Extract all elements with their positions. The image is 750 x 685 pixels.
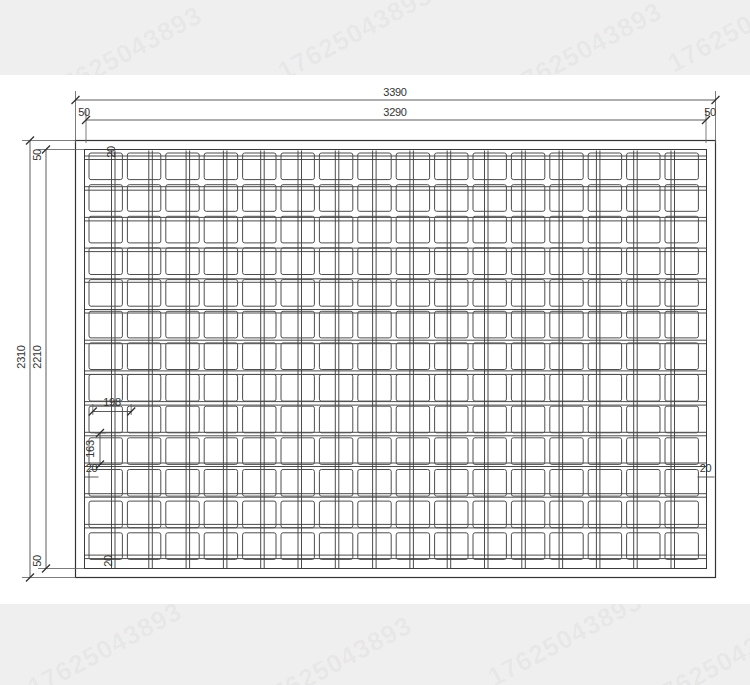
- mesh-cell: [473, 438, 506, 465]
- dim-overall-width: 3390: [383, 86, 406, 98]
- mesh-cell: [588, 311, 621, 338]
- mesh-cell: [319, 185, 352, 212]
- mesh-cell: [511, 501, 544, 528]
- mesh-cell: [127, 185, 160, 212]
- mesh-cell: [166, 343, 199, 370]
- mesh-cell: [588, 185, 621, 212]
- mesh-cell: [473, 216, 506, 243]
- mesh-cell: [89, 280, 122, 307]
- mesh-cell: [204, 216, 237, 243]
- dim-inner-height: 2210: [31, 345, 43, 368]
- mesh-cell: [243, 343, 276, 370]
- mesh-cell: [627, 470, 660, 497]
- mesh-cell: [358, 311, 391, 338]
- mesh-cell: [396, 375, 429, 402]
- mesh-cell: [396, 470, 429, 497]
- mesh-cell: [358, 375, 391, 402]
- dim-overall-height: 2310: [15, 345, 27, 368]
- mesh-cell: [204, 185, 237, 212]
- mesh-panel-drawing: 3390 3290 50 50 2310 2210 50 50 198: [0, 0, 750, 685]
- dim-cell-pitch-horizontal: 198: [103, 396, 121, 408]
- mesh-cell: [665, 470, 698, 497]
- mesh-cell: [127, 438, 160, 465]
- mesh-cell: [319, 501, 352, 528]
- dim-edge-left-bottom: 50: [31, 555, 43, 567]
- mesh-cell: [473, 311, 506, 338]
- mesh-cell: [89, 501, 122, 528]
- mesh-cell: [89, 343, 122, 370]
- mesh-cell: [435, 438, 468, 465]
- mesh-cell: [665, 280, 698, 307]
- mesh-cell: [588, 406, 621, 433]
- mesh-cell: [396, 343, 429, 370]
- mesh-cells: [89, 153, 698, 559]
- mesh-cell: [665, 153, 698, 180]
- mesh-cell: [319, 280, 352, 307]
- mesh-cell: [665, 343, 698, 370]
- mesh-cell: [627, 438, 660, 465]
- mesh-cell: [473, 406, 506, 433]
- mesh-cell: [511, 185, 544, 212]
- mesh-cell: [204, 280, 237, 307]
- mesh-cell: [550, 311, 583, 338]
- mesh-cell: [127, 470, 160, 497]
- mesh-cell: [473, 343, 506, 370]
- mesh-cell: [166, 153, 199, 180]
- mesh-cell: [358, 406, 391, 433]
- mesh-cell: [550, 185, 583, 212]
- mesh-cell: [511, 470, 544, 497]
- dim-edge-top-right: 50: [704, 106, 716, 118]
- mesh-cell: [396, 438, 429, 465]
- mesh-cell: [627, 153, 660, 180]
- mesh-cell: [665, 375, 698, 402]
- dim-offset-bottom: 20: [102, 555, 114, 567]
- dimension-top: 3390 3290 50 50: [72, 86, 720, 143]
- mesh-cell: [627, 343, 660, 370]
- mesh-cell: [166, 438, 199, 465]
- mesh-cell: [435, 470, 468, 497]
- mesh-cell: [588, 470, 621, 497]
- panel-outer-frame: [76, 141, 716, 578]
- mesh-cell: [243, 406, 276, 433]
- mesh-wires: [85, 151, 706, 569]
- mesh-cell: [588, 216, 621, 243]
- mesh-cell: [319, 375, 352, 402]
- mesh-cell: [665, 216, 698, 243]
- mesh-cell: [396, 311, 429, 338]
- mesh-cell: [89, 311, 122, 338]
- mesh-cell: [319, 153, 352, 180]
- mesh-cell: [127, 375, 160, 402]
- mesh-cell: [204, 153, 237, 180]
- mesh-cell: [204, 375, 237, 402]
- mesh-cell: [396, 501, 429, 528]
- mesh-cell: [358, 216, 391, 243]
- mesh-cell: [665, 406, 698, 433]
- mesh-cell: [166, 216, 199, 243]
- mesh-cell: [473, 185, 506, 212]
- mesh-cell: [627, 185, 660, 212]
- mesh-cell: [358, 153, 391, 180]
- mesh-cell: [319, 406, 352, 433]
- mesh-cell: [204, 438, 237, 465]
- dim-edge-top-left: 50: [78, 106, 90, 118]
- mesh-cell: [204, 406, 237, 433]
- mesh-cell: [166, 185, 199, 212]
- mesh-cell: [127, 153, 160, 180]
- mesh-cell: [166, 501, 199, 528]
- mesh-cell: [435, 280, 468, 307]
- mesh-cell: [243, 375, 276, 402]
- mesh-cell: [358, 343, 391, 370]
- mesh-cell: [550, 470, 583, 497]
- mesh-cell: [396, 153, 429, 180]
- mesh-cell: [473, 470, 506, 497]
- mesh-cell: [473, 153, 506, 180]
- mesh-cell: [243, 501, 276, 528]
- mesh-cell: [511, 153, 544, 180]
- mesh-cell: [511, 216, 544, 243]
- mesh-cell: [473, 501, 506, 528]
- dim-offset-left: 20: [86, 462, 98, 474]
- mesh-cell: [665, 185, 698, 212]
- mesh-cell: [588, 280, 621, 307]
- dim-cell-pitch-vertical: 163: [84, 440, 96, 458]
- mesh-cell: [627, 280, 660, 307]
- mesh-cell: [550, 216, 583, 243]
- mesh-cell: [243, 470, 276, 497]
- mesh-cell: [511, 343, 544, 370]
- mesh-cell: [550, 375, 583, 402]
- mesh-cell: [243, 216, 276, 243]
- mesh-cell: [166, 375, 199, 402]
- mesh-cell: [665, 438, 698, 465]
- mesh-cell: [396, 185, 429, 212]
- mesh-cell: [627, 375, 660, 402]
- mesh-cell: [89, 216, 122, 243]
- mesh-cell: [435, 216, 468, 243]
- mesh-cell: [627, 501, 660, 528]
- mesh-cell: [550, 501, 583, 528]
- mesh-cell: [435, 311, 468, 338]
- mesh-cell: [358, 470, 391, 497]
- mesh-cell: [588, 501, 621, 528]
- mesh-cell: [127, 501, 160, 528]
- mesh-cell: [550, 280, 583, 307]
- mesh-cell: [627, 311, 660, 338]
- dimension-offset-left: 20: [85, 462, 99, 477]
- mesh-cell: [473, 280, 506, 307]
- mesh-cell: [550, 406, 583, 433]
- mesh-cell: [358, 185, 391, 212]
- mesh-cell: [243, 311, 276, 338]
- dim-edge-left-top: 50: [31, 149, 43, 161]
- mesh-cell: [319, 216, 352, 243]
- mesh-cell: [550, 153, 583, 180]
- mesh-cell: [358, 501, 391, 528]
- mesh-cell: [665, 311, 698, 338]
- mesh-cell: [127, 216, 160, 243]
- mesh-cell: [204, 470, 237, 497]
- mesh-cell: [166, 406, 199, 433]
- mesh-cell: [435, 153, 468, 180]
- mesh-cell: [89, 185, 122, 212]
- mesh-cell: [665, 501, 698, 528]
- mesh-cell: [511, 438, 544, 465]
- mesh-cell: [319, 343, 352, 370]
- mesh-cell: [396, 406, 429, 433]
- mesh-cell: [435, 501, 468, 528]
- mesh-cell: [435, 185, 468, 212]
- mesh-cell: [243, 280, 276, 307]
- mesh-cell: [319, 470, 352, 497]
- mesh-cell: [243, 185, 276, 212]
- mesh-cell: [511, 406, 544, 433]
- mesh-cell: [473, 375, 506, 402]
- mesh-cell: [588, 343, 621, 370]
- mesh-cell: [627, 216, 660, 243]
- mesh-cell: [319, 311, 352, 338]
- mesh-cell: [511, 311, 544, 338]
- mesh-cell: [166, 311, 199, 338]
- mesh-cell: [243, 438, 276, 465]
- mesh-cell: [127, 311, 160, 338]
- mesh-cell: [396, 280, 429, 307]
- dim-offset-right: 20: [700, 462, 712, 474]
- mesh-cell: [511, 375, 544, 402]
- mesh-cell: [127, 280, 160, 307]
- mesh-cell: [435, 375, 468, 402]
- mesh-cell: [550, 343, 583, 370]
- mesh-cell: [550, 438, 583, 465]
- mesh-cell: [588, 375, 621, 402]
- mesh-cell: [588, 153, 621, 180]
- mesh-cell: [358, 438, 391, 465]
- mesh-cell: [166, 470, 199, 497]
- mesh-cell: [204, 501, 237, 528]
- mesh-cell: [511, 280, 544, 307]
- mesh-cell: [319, 438, 352, 465]
- mesh-cell: [204, 343, 237, 370]
- mesh-cell: [435, 343, 468, 370]
- mesh-cell: [204, 311, 237, 338]
- mesh-cell: [243, 153, 276, 180]
- mesh-cell: [166, 280, 199, 307]
- mesh-cell: [435, 406, 468, 433]
- dim-offset-top: 20: [105, 146, 117, 158]
- mesh-cell: [627, 406, 660, 433]
- mesh-cell: [588, 438, 621, 465]
- dim-inner-width: 3290: [383, 106, 406, 118]
- mesh-cell: [358, 280, 391, 307]
- panel-inner-frame: [85, 150, 707, 569]
- mesh-cell: [127, 343, 160, 370]
- mesh-cell: [396, 216, 429, 243]
- dimension-left: 2310 2210 50 50: [15, 137, 84, 582]
